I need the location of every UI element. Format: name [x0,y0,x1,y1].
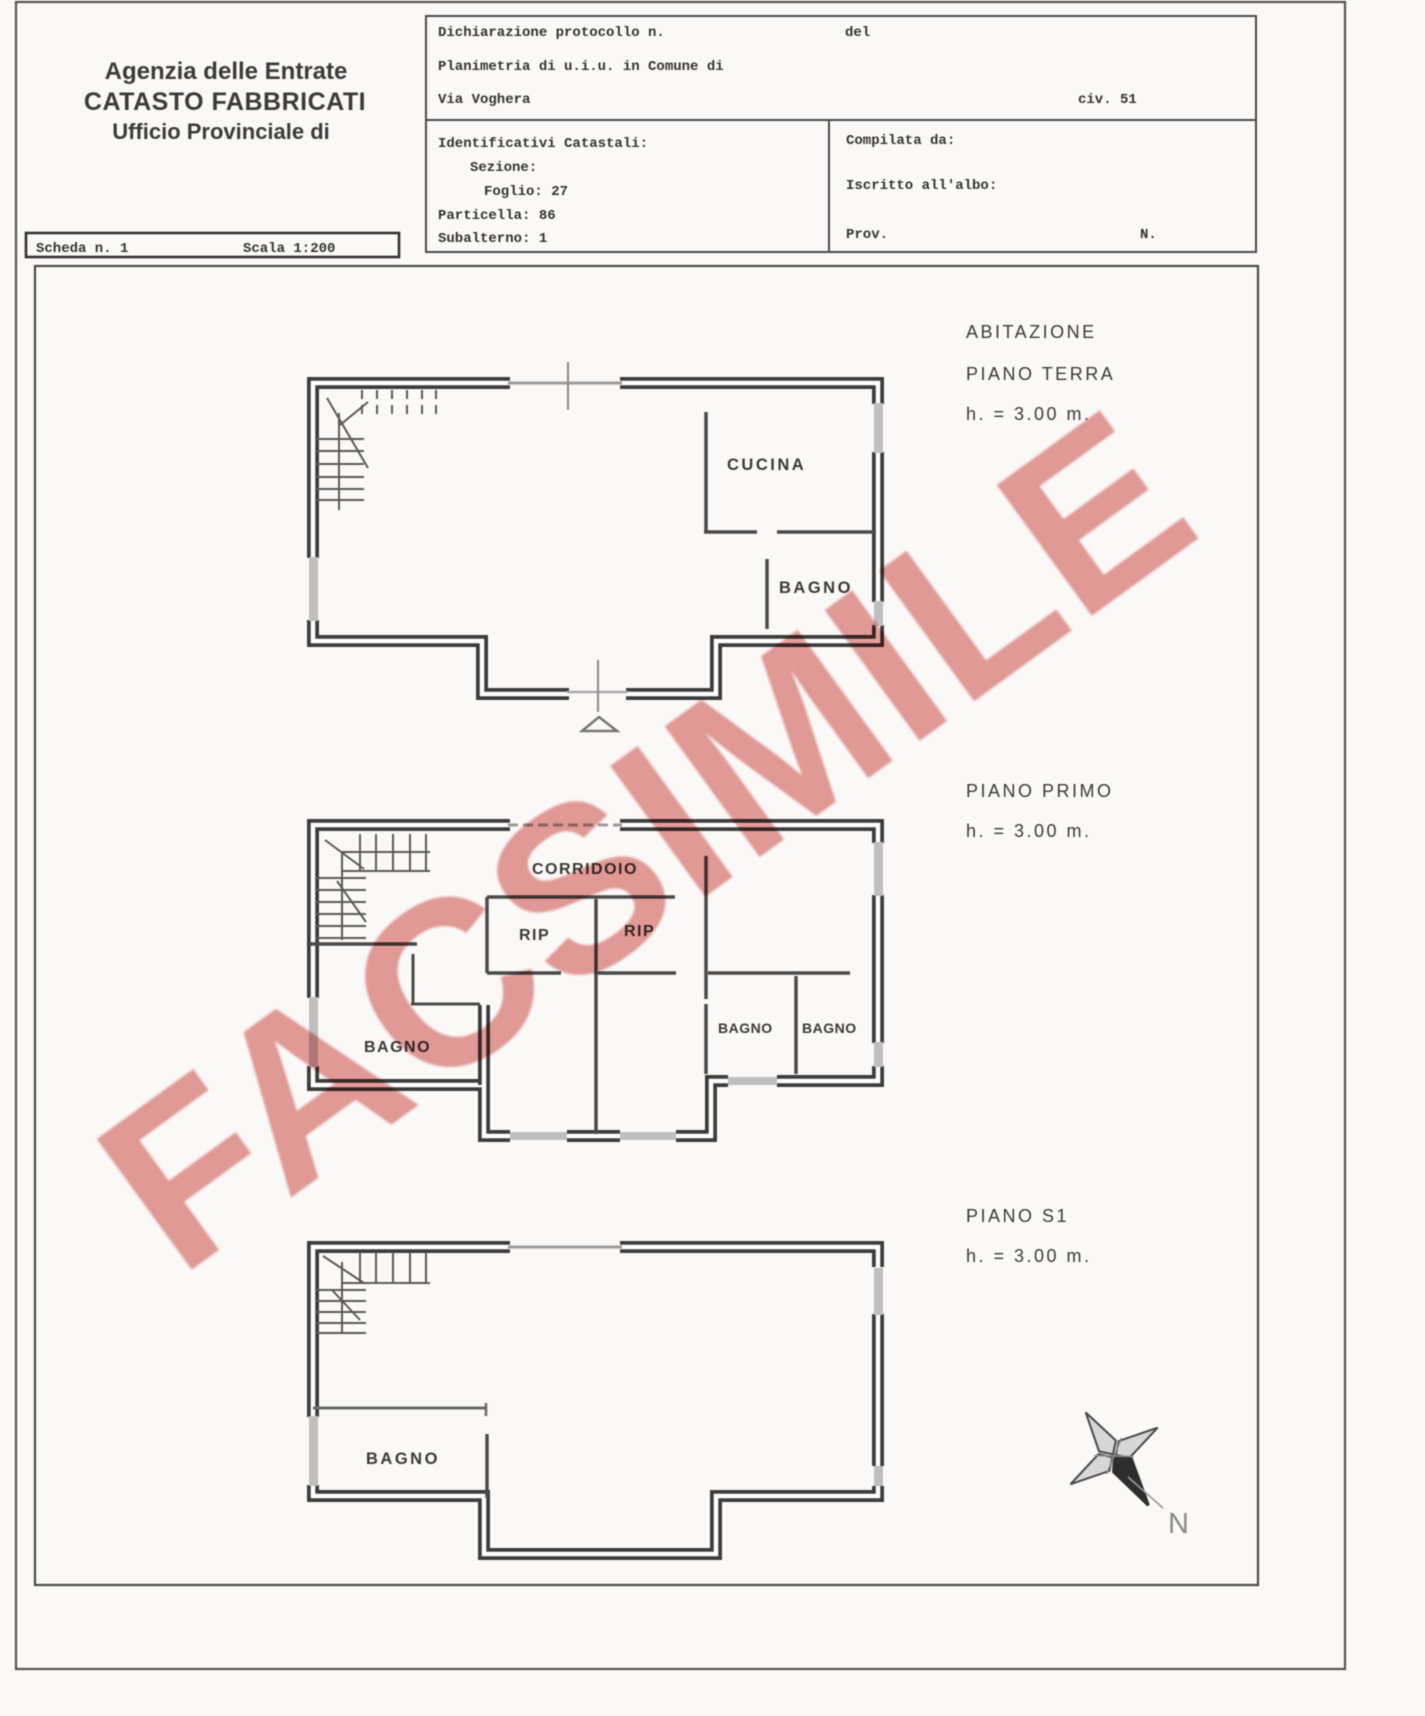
svg-text:CUCINA: CUCINA [727,456,806,474]
svg-text:del: del [845,25,870,41]
svg-text:Foglio: 27: Foglio: 27 [484,184,568,200]
svg-text:Scala 1:200: Scala 1:200 [243,241,335,257]
svg-text:N.: N. [1140,227,1157,243]
svg-text:Subalterno: 1: Subalterno: 1 [438,231,547,247]
svg-text:BAGNO: BAGNO [718,1020,773,1036]
svg-text:Iscritto all'albo:: Iscritto all'albo: [846,178,997,194]
svg-text:h. = 3.00 m.: h. = 3.00 m. [966,1246,1092,1266]
svg-text:PIANO S1: PIANO S1 [966,1206,1069,1226]
svg-text:Dichiarazione protocollo n.: Dichiarazione protocollo n. [438,25,665,41]
svg-text:PIANO PRIMO: PIANO PRIMO [966,781,1114,801]
svg-text:Agenzia delle Entrate: Agenzia delle Entrate [105,58,348,85]
svg-text:Particella: 86: Particella: 86 [438,208,556,224]
svg-text:civ. 51: civ. 51 [1078,92,1137,108]
svg-text:h. = 3.00 m.: h. = 3.00 m. [966,821,1092,841]
svg-text:Identificativi Catastali:: Identificativi Catastali: [438,136,648,152]
svg-text:N: N [1168,1508,1189,1540]
svg-text:BAGNO: BAGNO [802,1020,857,1036]
svg-text:Compilata da:: Compilata da: [846,133,955,149]
svg-text:Ufficio Provinciale di: Ufficio Provinciale di [112,119,330,144]
svg-text:Via Voghera: Via Voghera [438,92,531,108]
svg-text:Scheda n. 1: Scheda n. 1 [36,241,128,257]
svg-text:CATASTO FABBRICATI: CATASTO FABBRICATI [84,88,366,116]
svg-text:Planimetria di u.i.u. in Comun: Planimetria di u.i.u. in Comune di [438,59,724,75]
svg-text:ABITAZIONE: ABITAZIONE [966,322,1097,342]
svg-text:Sezione:: Sezione: [470,160,537,176]
svg-text:BAGNO: BAGNO [366,1450,440,1468]
svg-text:Prov.: Prov. [846,227,888,243]
